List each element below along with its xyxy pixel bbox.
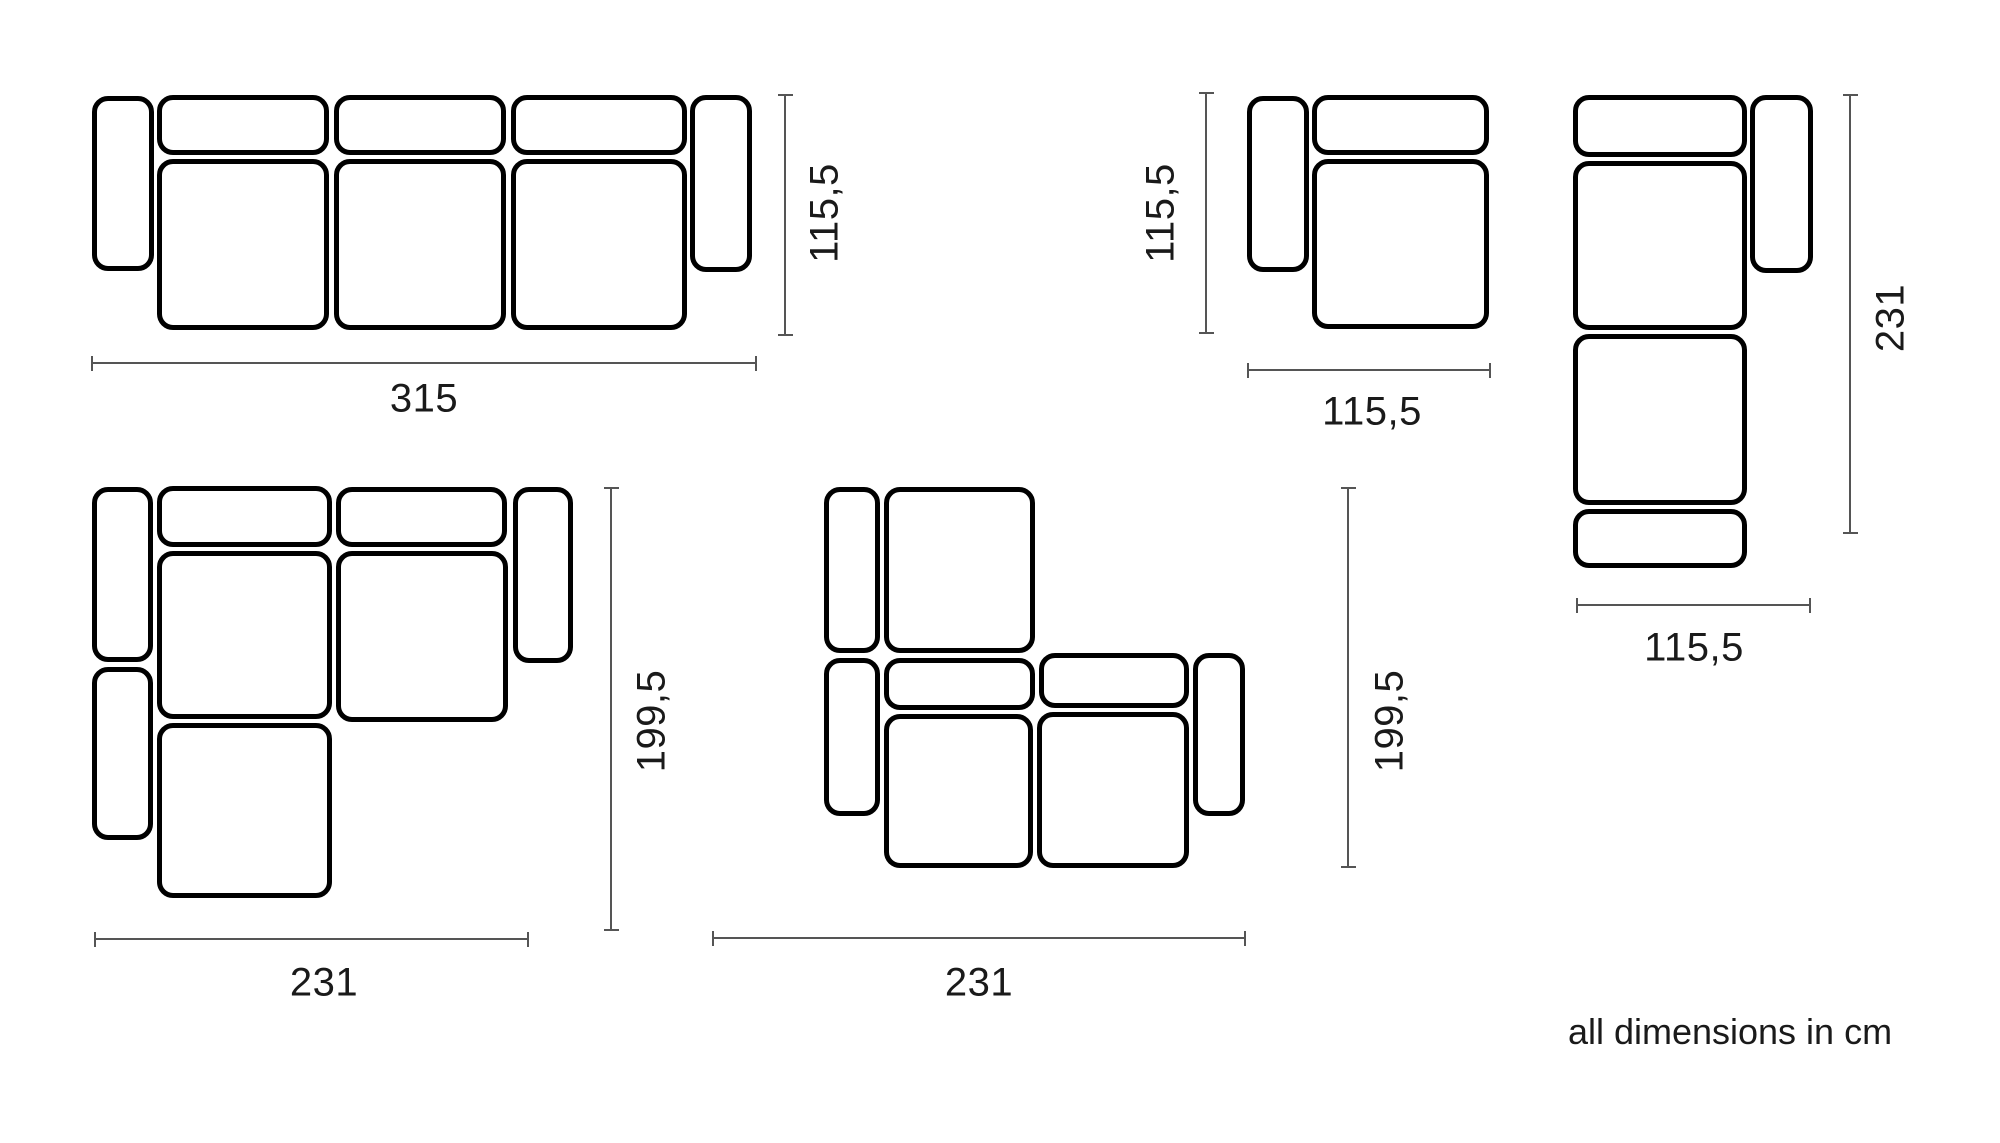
corner-sofa-chaise-up-armrest-top-left [824,487,880,653]
dim-line-horizontal [713,937,1245,939]
corner-sofa-chaise-up-backrest-2 [1039,653,1189,708]
corner-sofa-chaise-up-backrest-1 [884,658,1035,710]
dim-label: 231 [945,961,1013,1006]
corner-sofa-chaise-up-seat-2 [1037,712,1189,868]
dim-tick [1341,866,1356,868]
dim-tick [712,931,714,946]
units-note: all dimensions in cm [1568,1011,1892,1053]
corner-sofa-chaise-up-seat-1 [884,714,1033,868]
corner-sofa-chaise-up: 199,5231 [0,0,2000,1143]
corner-sofa-chaise-up-chaise-seat [884,487,1035,653]
dim-label: 199,5 [1368,670,1413,773]
corner-sofa-chaise-up-armrest-mid-left [824,658,880,816]
dim-line-vertical [1347,488,1349,867]
dim-tick [1341,487,1356,489]
corner-sofa-chaise-up-armrest-right [1193,653,1245,816]
diagram-root: 315115,5115,5115,5231115,5199,5231199,52… [0,0,2000,1143]
sofa-dimension-sheet: 315115,5115,5115,5231115,5199,5231199,52… [0,0,2000,1143]
dim-tick [1244,931,1246,946]
